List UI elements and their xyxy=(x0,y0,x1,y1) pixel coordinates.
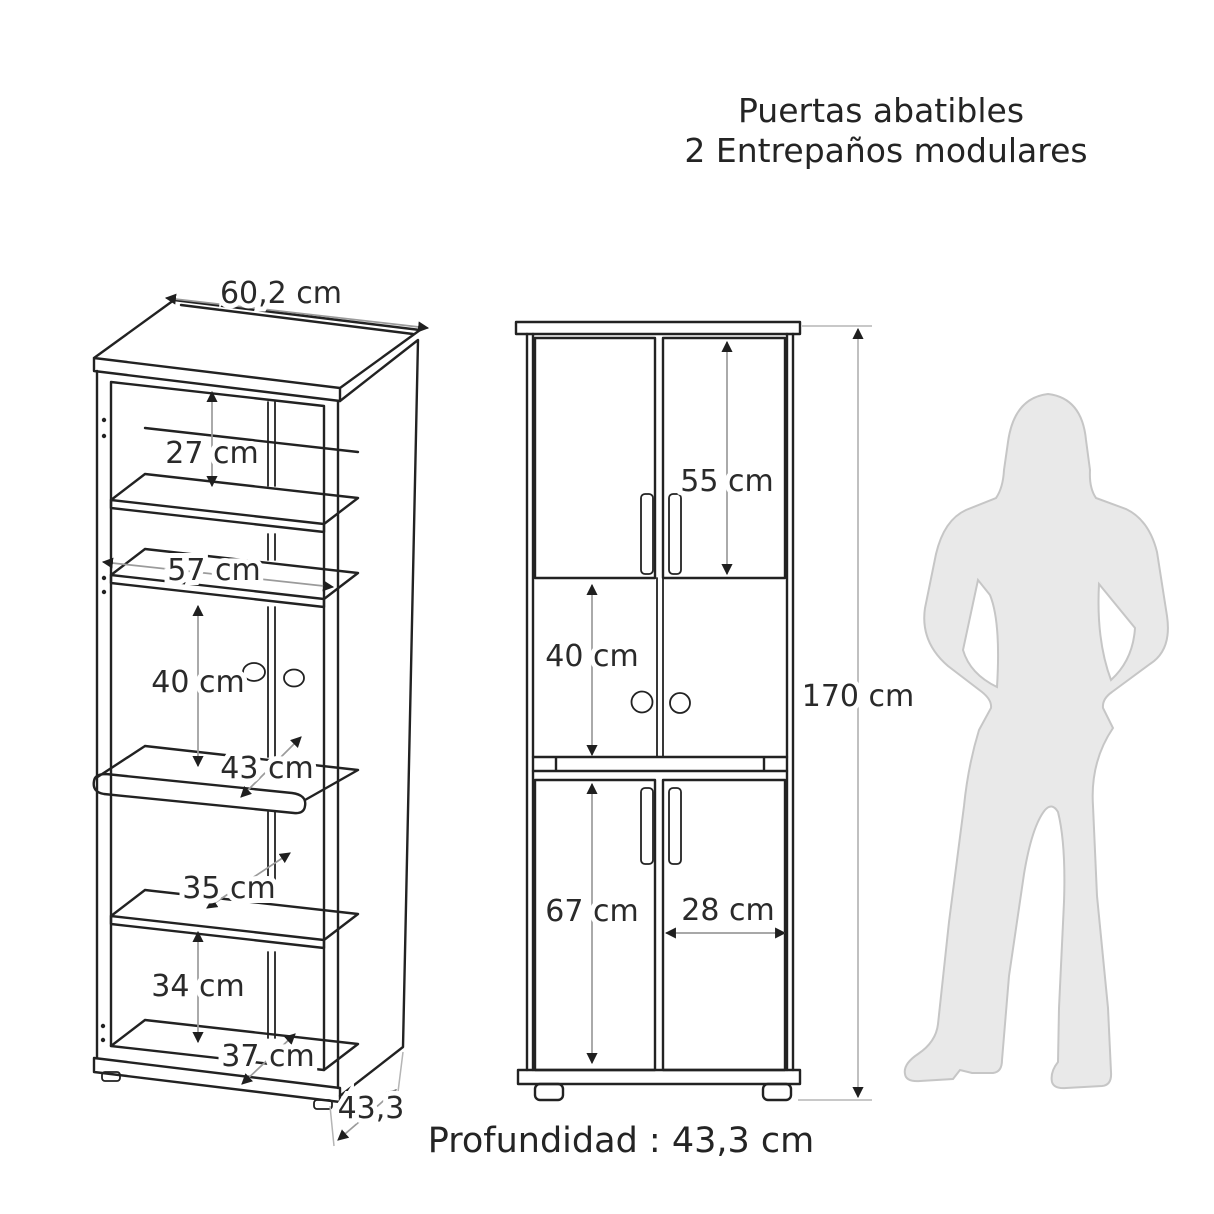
dim-label-middle-open: 40 cm xyxy=(545,639,638,674)
shelf-top xyxy=(111,474,358,532)
dim-label-section-top: 27 cm xyxy=(165,436,258,471)
dim-label-shelf-lower: 35 cm xyxy=(182,871,275,906)
middle-shelf-band xyxy=(533,757,787,771)
front-foot-right xyxy=(763,1084,791,1100)
middle-partition xyxy=(657,578,663,757)
dim-label-total-height: 170 cm xyxy=(802,679,915,714)
dim-label-base-depth: 37 cm xyxy=(221,1039,314,1074)
left-view-dimensions: 60,2 cm 27 cm 57 cm 40 cm 43 cm 35 cm 34… xyxy=(103,276,428,1146)
right-view-dimensions: 55 cm 40 cm 67 cm 28 cm 170 cm xyxy=(545,326,914,1100)
lower-door-right-handle xyxy=(669,788,681,864)
knob-hole-right xyxy=(284,670,304,687)
title-block: Puertas abatibles 2 Entrepaños modulares xyxy=(684,91,1087,170)
dim-label-section-bottom: 34 cm xyxy=(151,969,244,1004)
furniture-diagram: Puertas abatibles 2 Entrepaños modulares xyxy=(0,0,1214,1214)
shelf-pin-holes xyxy=(101,418,106,1042)
dim-label-shelf-pullout: 43 cm xyxy=(220,751,313,786)
middle-knob-left xyxy=(632,692,653,713)
dim-label-upper-door: 55 cm xyxy=(680,464,773,499)
title-line-1: Puertas abatibles xyxy=(738,91,1024,130)
front-foot-left xyxy=(535,1084,563,1100)
dim-label-door-width: 28 cm xyxy=(681,893,774,928)
upper-door-right-handle xyxy=(669,494,681,574)
dim-label-interior-width: 57 cm xyxy=(167,553,260,588)
right-cabinet-view: 55 cm 40 cm 67 cm 28 cm 170 cm xyxy=(516,322,914,1100)
dim-label-width-top: 60,2 cm xyxy=(220,276,342,311)
knob-hole-left xyxy=(243,663,265,681)
depth-note: Profundidad : 43,3 cm xyxy=(428,1121,814,1161)
front-top-slab xyxy=(516,322,800,334)
title-line-2: 2 Entrepaños modulares xyxy=(684,131,1087,170)
cabinet-side-panel xyxy=(340,340,418,1096)
front-base-slab xyxy=(518,1070,800,1084)
upper-door-left xyxy=(535,338,655,578)
dim-label-lower-door: 67 cm xyxy=(545,894,638,929)
upper-door-left-handle xyxy=(641,494,653,574)
diagram-page: Puertas abatibles 2 Entrepaños modulares xyxy=(0,0,1214,1214)
lower-door-left-handle xyxy=(641,788,653,864)
front-side-walls xyxy=(527,334,793,1070)
person-silhouette xyxy=(905,394,1168,1088)
dim-label-section-middle: 40 cm xyxy=(151,665,244,700)
dim-label-depth-side: 43,3 xyxy=(338,1091,405,1126)
left-cabinet-view: 60,2 cm 27 cm 57 cm 40 cm 43 cm 35 cm 34… xyxy=(94,276,428,1146)
middle-knob-right xyxy=(670,693,690,713)
